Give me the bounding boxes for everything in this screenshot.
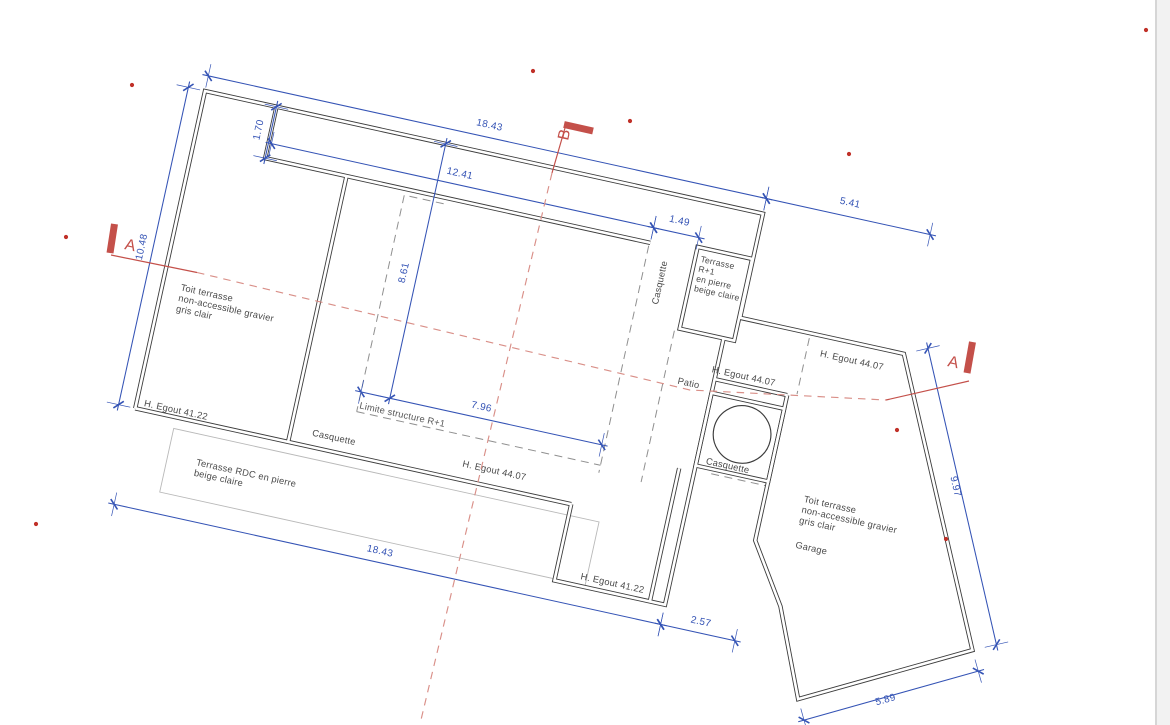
reference-dot-3: [847, 152, 851, 156]
roof-plan-canvas: 18.435.411.7012.411.498.617.9610.489.972…: [0, 0, 1170, 725]
reference-dot-7: [944, 537, 948, 541]
reference-dot-2: [628, 119, 632, 123]
reference-dot-5: [34, 522, 38, 526]
paper-background: [0, 0, 1170, 725]
reference-dot-8: [1144, 28, 1148, 32]
reference-dot-4: [64, 235, 68, 239]
section-marker-a-left-bar: [110, 224, 115, 253]
reference-dot-0: [130, 83, 134, 87]
reference-dot-6: [895, 428, 899, 432]
reference-dot-1: [531, 69, 535, 73]
cad-drawing-viewport[interactable]: 18.435.411.7012.411.498.617.9610.489.972…: [0, 0, 1170, 725]
scrollbar-track[interactable]: [1155, 0, 1170, 725]
